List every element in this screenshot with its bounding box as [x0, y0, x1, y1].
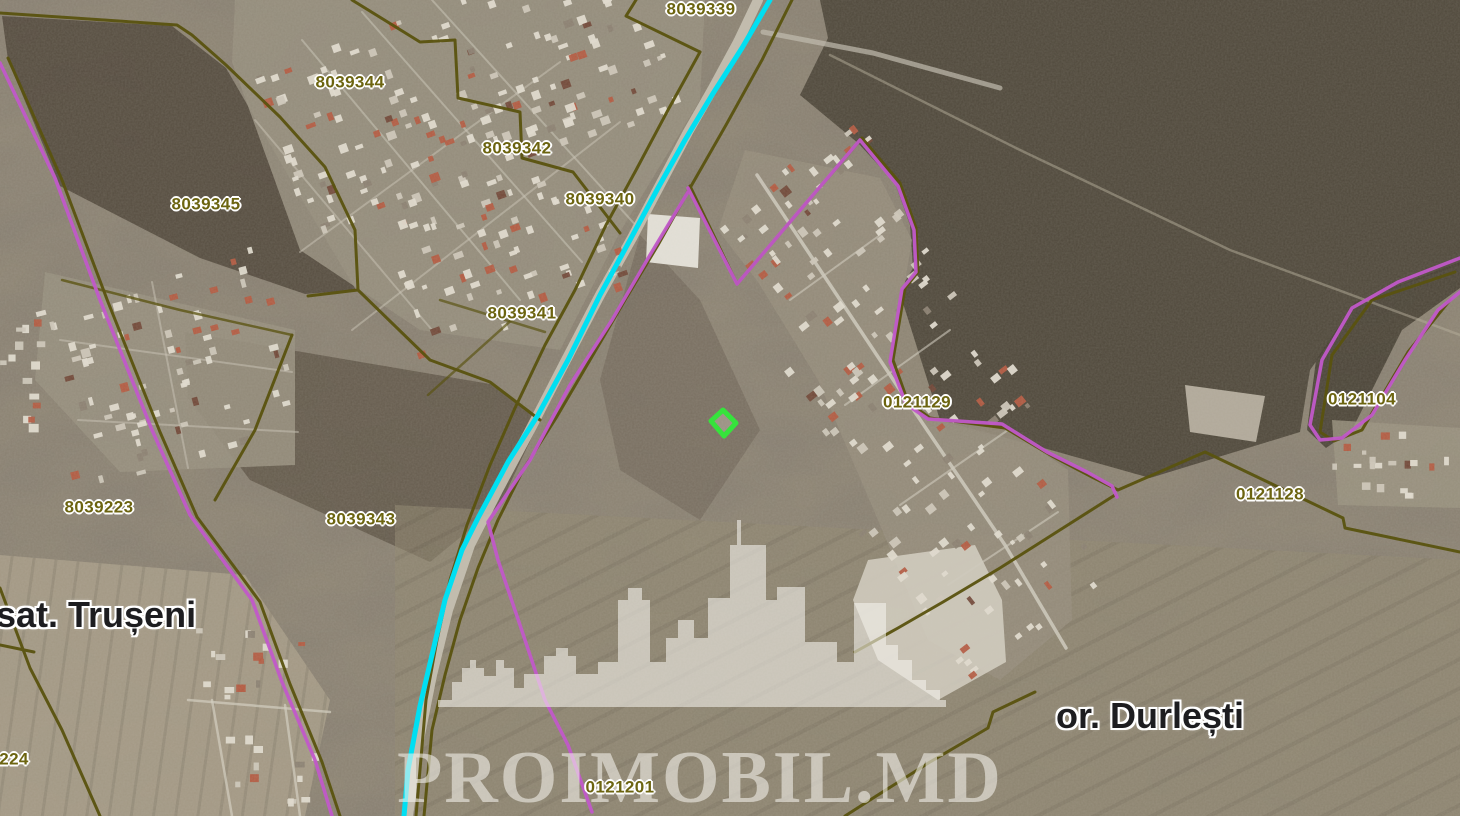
watermark-brand: PROIMOBIL.MD	[397, 737, 1003, 816]
map-viewport[interactable]: PROIMOBIL.MD 803933980393448039342803934…	[0, 0, 1460, 816]
satellite-map[interactable]: PROIMOBIL.MD	[0, 0, 1460, 816]
